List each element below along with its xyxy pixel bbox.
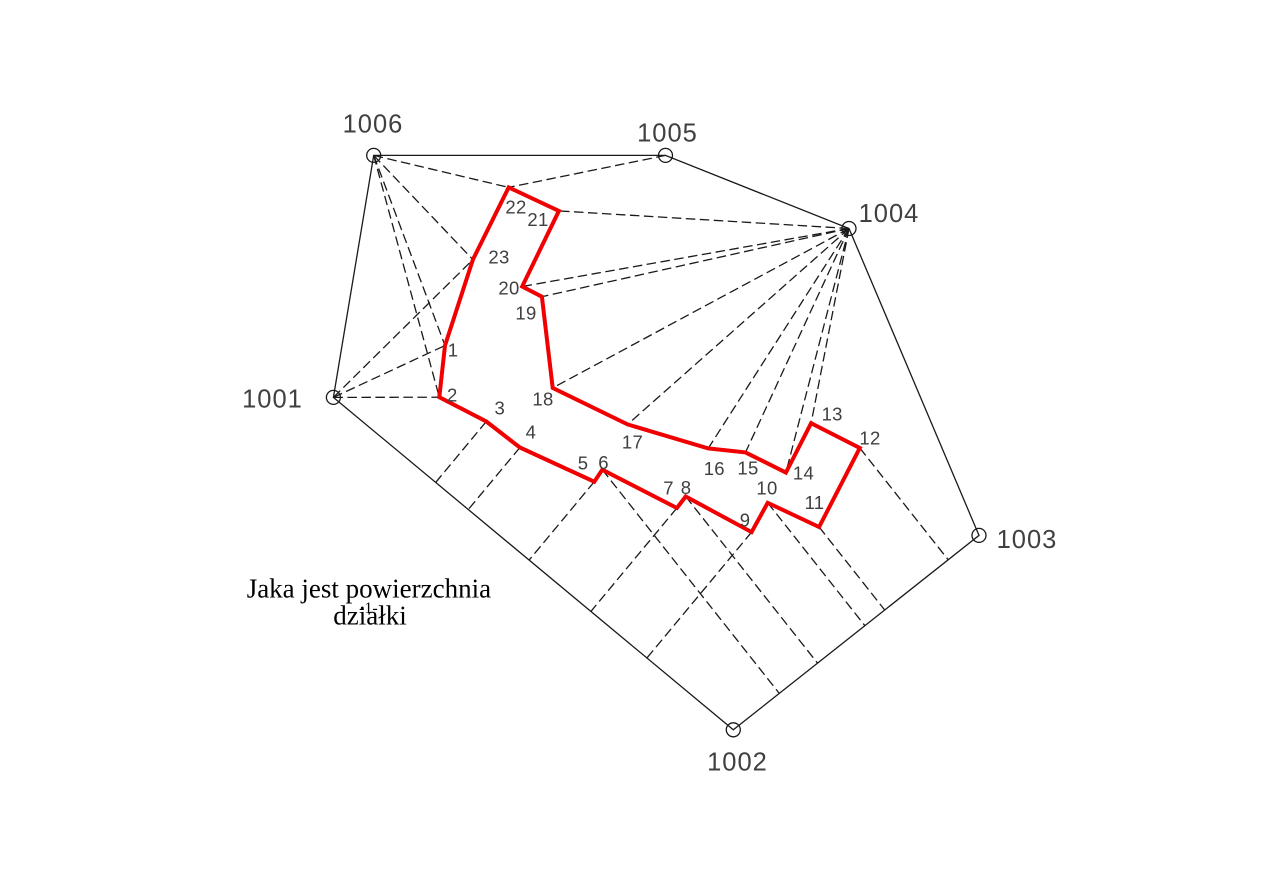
svg-text:6: 6 [598,452,609,473]
svg-text:23: 23 [488,247,509,268]
svg-text:19: 19 [515,303,536,324]
svg-text:2: 2 [447,384,458,405]
svg-text:7: 7 [663,477,674,498]
svg-text:11: 11 [805,492,825,513]
svg-text:1: 1 [448,340,459,361]
svg-text:22: 22 [505,197,526,218]
svg-text:15: 15 [737,458,758,479]
svg-text:1004: 1004 [859,200,920,228]
svg-text:4: 4 [526,422,537,443]
svg-text:1005: 1005 [637,120,698,148]
svg-text:20: 20 [498,277,519,298]
svg-text:3: 3 [495,397,506,418]
svg-text:1006: 1006 [343,111,404,139]
svg-text:16: 16 [704,458,725,479]
svg-text:8: 8 [681,477,692,498]
svg-text:18: 18 [532,389,553,410]
svg-text:9: 9 [740,510,751,531]
svg-text:12: 12 [859,427,880,448]
svg-text:1001: 1001 [242,386,303,414]
svg-text:-1-: -1- [359,600,378,617]
svg-text:1003: 1003 [997,526,1058,554]
svg-text:1002: 1002 [707,749,768,777]
svg-text:13: 13 [822,403,843,424]
svg-text:17: 17 [622,432,643,453]
svg-text:10: 10 [756,478,777,499]
svg-text:5: 5 [578,453,589,474]
svg-text:14: 14 [793,462,814,483]
svg-text:21: 21 [527,209,548,230]
